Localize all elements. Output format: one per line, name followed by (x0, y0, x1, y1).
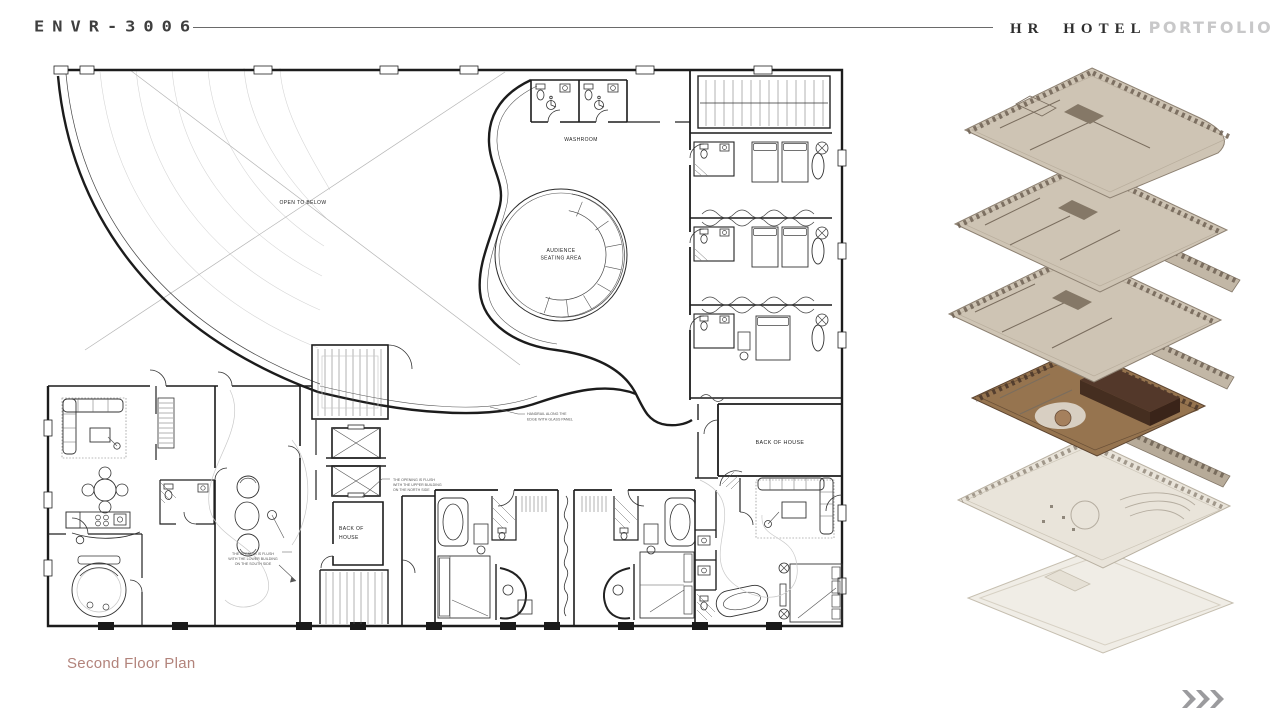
label-open-to-below: OPEN TO BELOW (280, 200, 327, 206)
plan-suite-west (48, 386, 308, 626)
note-south-2: WITH THE LOWER BUILDING (228, 557, 278, 561)
plan-guestrooms-south (402, 490, 695, 626)
note-south-1: THE OPENING IS FLUSH (232, 552, 274, 556)
plan-washroom (531, 80, 690, 122)
label-boh-east: BACK OF HOUSE (756, 440, 805, 446)
next-page-chevrons-icon[interactable] (1181, 688, 1227, 710)
label-washroom: WASHROOM (564, 137, 598, 143)
plan-annotations: HANDRAIL ALONG THE EDGE WITH GLASS PANEL… (228, 407, 573, 583)
label-boh-core-1: BACK OF (339, 526, 364, 532)
plan-back-of-house-east (695, 395, 842, 479)
label-audience-2: SEATING AREA (540, 256, 581, 262)
plan-suite-southeast (695, 471, 842, 622)
note-north-1: THE OPENING IS FLUSH (393, 478, 435, 482)
note-handrail-2: EDGE WITH GLASS PANEL (527, 418, 573, 422)
note-south-3: ON THE SOUTH SIDE (235, 562, 272, 566)
floor-plan-drawing: WASHROOM OPEN TO BELOW AUDIENCE SEATING … (0, 0, 1280, 720)
plan-guestrooms-east (690, 70, 842, 400)
label-boh-core-2: HOUSE (339, 535, 359, 541)
slide-caption: Second Floor Plan (67, 655, 196, 672)
note-handrail-1: HANDRAIL ALONG THE (527, 412, 567, 416)
note-north-2: WITH THE UPPER BUILDING (393, 483, 442, 487)
axon-exploded-view (949, 68, 1240, 653)
slide: ENVR-3006 HR HOTELPORTFOLIO (0, 0, 1280, 720)
note-north-3: ON THE NORTH SIDE (393, 488, 430, 492)
label-audience-1: AUDIENCE (546, 248, 575, 254)
